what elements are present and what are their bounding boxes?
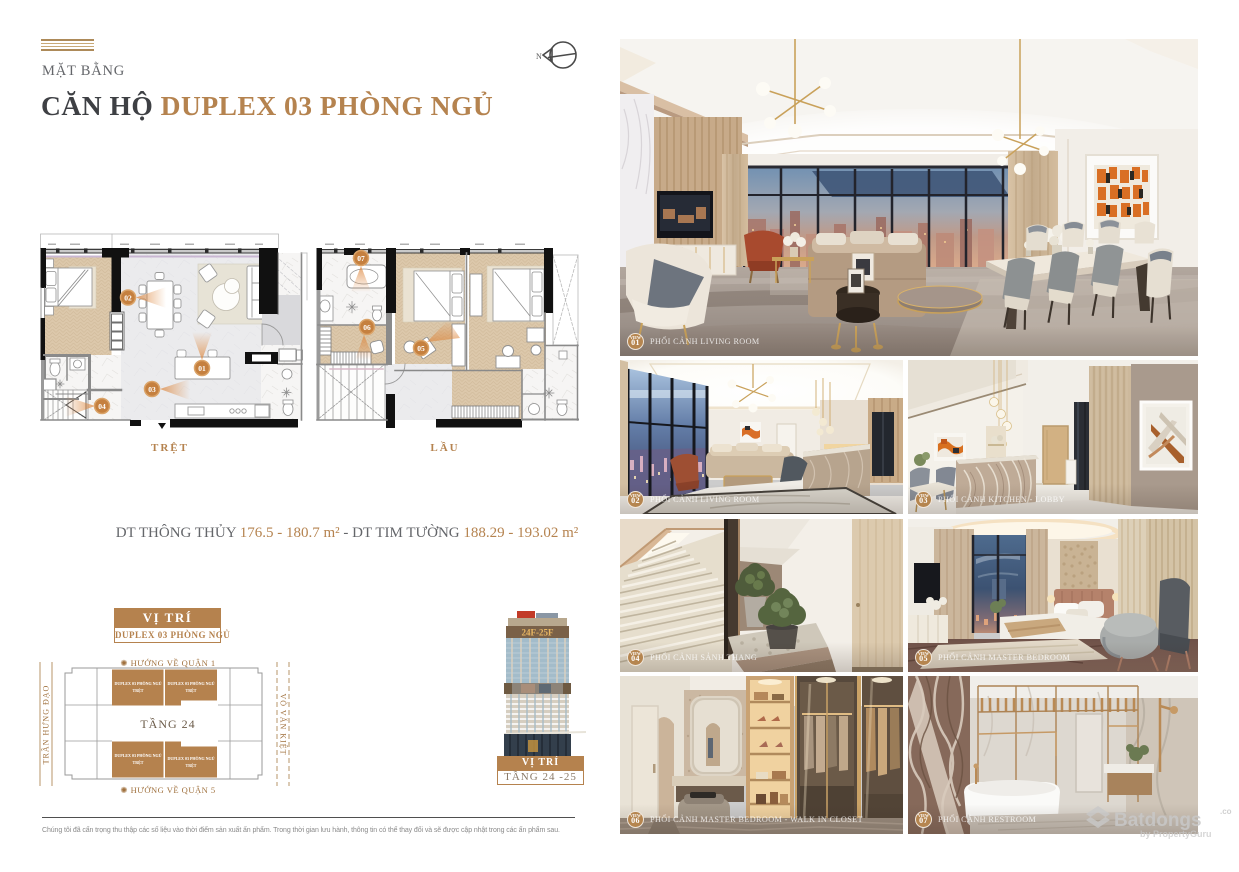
svg-text:TRỆT: TRỆT bbox=[186, 688, 197, 693]
svg-text:.co: .co bbox=[1220, 807, 1232, 816]
svg-text:04: 04 bbox=[98, 402, 106, 411]
svg-text:03: 03 bbox=[148, 385, 156, 394]
svg-text:02: 02 bbox=[124, 294, 132, 303]
svg-text:01: 01 bbox=[198, 364, 206, 373]
svg-text:DUPLEX 03 PHÒNG NGỦ: DUPLEX 03 PHÒNG NGỦ bbox=[115, 681, 162, 686]
svg-text:DUPLEX 03 PHÒNG NGỦ: DUPLEX 03 PHÒNG NGỦ bbox=[168, 756, 215, 761]
svg-text:TRỆT: TRỆT bbox=[133, 688, 144, 693]
svg-text:DUPLEX 03 PHÒNG NGỦ: DUPLEX 03 PHÒNG NGỦ bbox=[168, 681, 215, 686]
svg-text:24F-25F: 24F-25F bbox=[522, 628, 554, 638]
svg-text:by PropertyGuru: by PropertyGuru bbox=[1140, 829, 1212, 839]
svg-text:TRỆT: TRỆT bbox=[186, 763, 197, 768]
svg-text:06: 06 bbox=[363, 323, 371, 332]
svg-text:05: 05 bbox=[417, 344, 425, 353]
svg-text:Batdongs: Batdongs bbox=[1114, 810, 1202, 831]
svg-text:TRỆT: TRỆT bbox=[133, 760, 144, 765]
svg-text:DUPLEX 03 PHÒNG NGỦ: DUPLEX 03 PHÒNG NGỦ bbox=[115, 753, 162, 758]
svg-text:07: 07 bbox=[357, 254, 365, 263]
